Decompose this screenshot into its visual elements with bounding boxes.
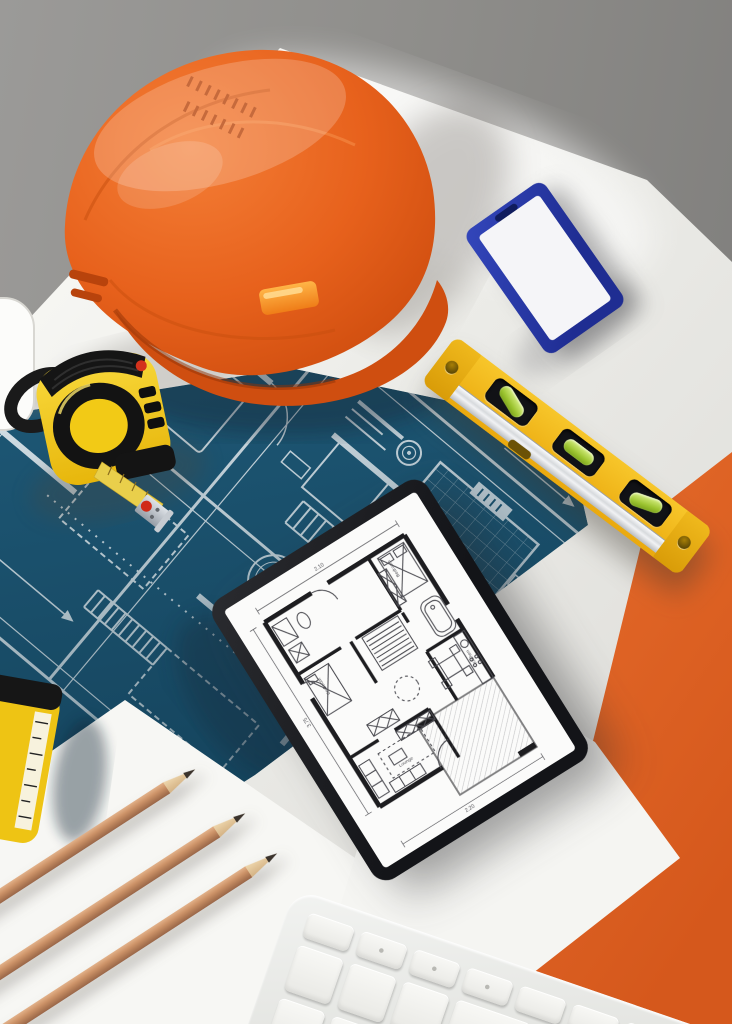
function-key [301, 912, 355, 952]
hanging-hole [443, 358, 461, 376]
plan-dimension-top: 2.10 [314, 562, 326, 573]
key [389, 981, 450, 1024]
volume-down-icon [407, 949, 461, 989]
plan-dimension-bottom: 2.20 [464, 803, 476, 814]
volume-mute-icon [354, 930, 408, 970]
key [336, 963, 397, 1024]
photo-scene: 2.10 3.75 2.20 Bedroom Bedroom Lounge Ki… [0, 0, 732, 1024]
volume-up-icon [460, 967, 514, 1007]
function-key [513, 985, 567, 1024]
hanging-hole [675, 533, 693, 551]
function-key [566, 1003, 620, 1024]
key [283, 944, 344, 1005]
